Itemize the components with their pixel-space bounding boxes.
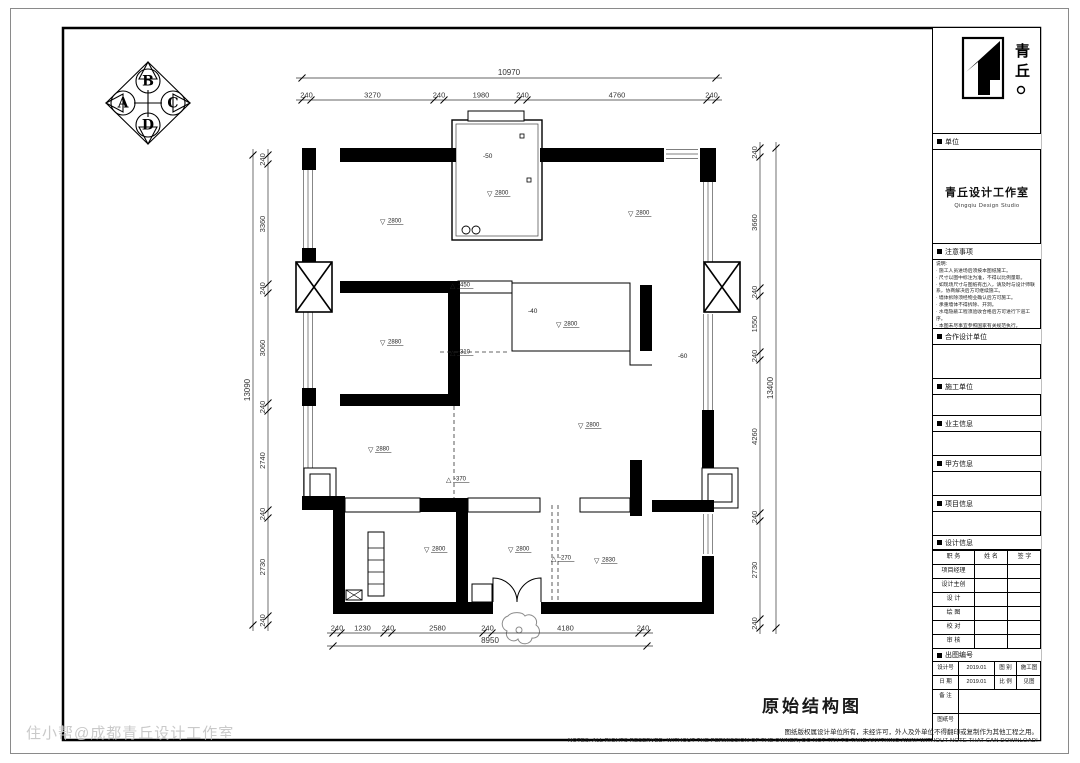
- compass-letter: D: [142, 118, 154, 134]
- dim-label: 1230: [354, 624, 371, 633]
- owner-label: 业主信息: [945, 419, 973, 429]
- level-mark-value: -450: [458, 283, 471, 289]
- dim-label: 240: [433, 91, 446, 100]
- drawing-sheet: 2403270240198024047602401097024012302402…: [0, 0, 1080, 763]
- level-mark-symbol: ▽: [628, 211, 634, 218]
- square-bullet-icon: [937, 249, 942, 254]
- date-label: 日 期: [933, 676, 959, 689]
- plant-graphic: [502, 613, 539, 644]
- dim-label: 240: [258, 282, 267, 295]
- level-mark-value: -370: [454, 477, 467, 483]
- svg-text:丘: 丘: [1015, 62, 1030, 80]
- sheetno-label: 出图编号: [945, 650, 973, 660]
- studio-name-en: Qingqiu Design Studio: [954, 203, 1019, 209]
- drawing-type-value: 施工图: [1017, 662, 1041, 675]
- dim-label: 3060: [258, 340, 267, 357]
- bay-window-room: [452, 111, 542, 240]
- dim-overall-label: 13400: [766, 376, 775, 399]
- design-col-name: 姓 名: [975, 551, 1008, 565]
- dim-label: 240: [382, 624, 395, 633]
- level-mark-value: 2800: [636, 211, 650, 217]
- drawing-title: 原始结构图: [762, 692, 862, 717]
- cabinet: [472, 584, 492, 602]
- dim-overall-label: 13090: [243, 378, 252, 401]
- level-mark-value: 2880: [388, 340, 402, 346]
- wardrobe: [368, 532, 384, 596]
- beam-offset-label: -50: [483, 153, 493, 160]
- section-header-design: 设计信息: [933, 535, 1041, 550]
- section-header-builder: 施工单位: [933, 378, 1041, 395]
- level-mark-symbol: △: [551, 556, 557, 563]
- table-row: 校 对: [933, 621, 975, 635]
- section-header-party: 甲方信息: [933, 455, 1041, 472]
- beam-offset-label: -60: [678, 353, 688, 360]
- copyright-cn: 图纸版权属设计单位所有，未经许可，外人及外单位不得翻印或复制作为其他工程之用。: [560, 729, 1038, 737]
- level-mark-symbol: ▽: [380, 340, 386, 347]
- square-bullet-icon: [937, 461, 942, 466]
- dim-label: 4760: [609, 91, 626, 100]
- level-mark-value: 2880: [376, 447, 390, 453]
- dim-label: 240: [481, 624, 494, 633]
- level-mark-symbol: △: [450, 283, 456, 290]
- dim-label: 2730: [258, 559, 267, 576]
- square-bullet-icon: [937, 540, 942, 545]
- dim-label: 240: [750, 617, 759, 630]
- level-mark-symbol: ▽: [556, 322, 562, 329]
- level-mark-value: 2800: [516, 547, 530, 553]
- dim-label: 240: [258, 614, 267, 627]
- design-label: 设计信息: [945, 538, 973, 548]
- dim-label: 240: [516, 91, 529, 100]
- level-mark-symbol: ▽: [368, 447, 374, 454]
- remark-label: 备 注: [933, 690, 959, 713]
- dim-label: 1980: [473, 91, 490, 100]
- dim-label: 3660: [750, 214, 759, 231]
- copyright-en: NOTES: ALL RIGHTS RESERVED. WITHOUT THE …: [560, 737, 1038, 745]
- level-mark-value: 2800: [432, 547, 446, 553]
- compass-letter: A: [117, 96, 130, 112]
- square-bullet-icon: [937, 501, 942, 506]
- info-row-2: 日 期 2019.01 比 例 见图: [933, 676, 1041, 690]
- level-mark-value: 2800: [495, 191, 509, 197]
- studio-name-cell: 青丘设计工作室 Qingqiu Design Studio: [933, 150, 1041, 243]
- compass-letter: C: [167, 96, 178, 112]
- square-bullet-icon: [937, 653, 942, 658]
- drawing-type-label: 图 别: [995, 662, 1017, 675]
- design-col-sign: 签 字: [1008, 551, 1041, 565]
- studio-logo: 青 丘: [933, 28, 1041, 133]
- level-mark-symbol: ▽: [487, 191, 493, 198]
- level-mark-symbol: △: [446, 477, 452, 484]
- table-row: 绘 图: [933, 607, 975, 621]
- level-mark-value: 2800: [564, 322, 578, 328]
- table-row: 设计主创: [933, 579, 975, 593]
- project-label: 项目信息: [945, 499, 973, 509]
- level-mark-symbol: ▽: [594, 558, 600, 565]
- watermark-text: 住小帮@成都青丘设计工作室: [26, 722, 234, 743]
- level-mark-value: 2830: [602, 558, 616, 564]
- level-mark-value: -310: [458, 350, 471, 356]
- beam-offset-label: -40: [528, 308, 538, 315]
- dim-overall-label: 10970: [498, 68, 521, 77]
- level-mark-symbol: ▽: [508, 547, 514, 554]
- logo-text: 青: [1015, 42, 1030, 60]
- compass-letter: B: [142, 74, 154, 90]
- square-bullet-icon: [937, 334, 942, 339]
- dim-label: 240: [331, 624, 344, 633]
- dim-label: 2730: [750, 562, 759, 579]
- design-table: 职 务 姓 名 签 字 项目经理 设计主创 设 计 绘 图 校 对 审 核: [933, 550, 1041, 648]
- dim-label: 240: [750, 286, 759, 299]
- floorplan-canvas: 2403270240198024047602401097024012302402…: [0, 0, 1080, 763]
- dim-overall-label: 8950: [481, 636, 499, 645]
- section-header-unit: 单位: [933, 133, 1041, 150]
- section-header-project: 项目信息: [933, 495, 1041, 512]
- copyright-footer: 图纸版权属设计单位所有，未经许可，外人及外单位不得翻印或复制作为其他工程之用。 …: [560, 729, 1038, 745]
- level-mark-value: -270: [559, 556, 572, 562]
- dim-label: 240: [705, 91, 718, 100]
- coop-label: 合作设计单位: [945, 332, 987, 342]
- dim-label: 240: [258, 153, 267, 166]
- level-mark-value: 2800: [586, 423, 600, 429]
- party-label: 甲方信息: [945, 459, 973, 469]
- dim-label: 240: [258, 508, 267, 521]
- level-mark-symbol: △: [450, 350, 456, 357]
- section-header-coop: 合作设计单位: [933, 328, 1041, 345]
- square-bullet-icon: [937, 421, 942, 426]
- section-header-owner: 业主信息: [933, 415, 1041, 432]
- remark-row: 备 注: [933, 690, 1041, 714]
- scale-value: 见图: [1017, 676, 1041, 689]
- builder-label: 施工单位: [945, 382, 973, 392]
- dim-label: 3270: [364, 91, 381, 100]
- design-no-value: 2019.01: [959, 662, 995, 675]
- dim-label: 2740: [258, 452, 267, 469]
- design-col-role: 职 务: [933, 551, 975, 565]
- table-row: 项目经理: [933, 565, 975, 579]
- thin-walls: [304, 281, 738, 602]
- notes-label: 注意事项: [945, 247, 973, 257]
- notes-text: 说明: · 施工人员进场后须按本图纸施工。 · 尺寸以图中标注为准，不得以比例量…: [933, 260, 1041, 328]
- design-no-label: 设计号: [933, 662, 959, 675]
- dim-label: 2580: [429, 624, 446, 633]
- dim-label: 4260: [750, 428, 759, 445]
- dim-label: 4180: [557, 624, 574, 633]
- logo-graphic: 青 丘: [933, 28, 1041, 133]
- kitchen-room: [512, 283, 630, 351]
- dim-label: 240: [750, 146, 759, 159]
- dim-label: 240: [750, 511, 759, 524]
- date-value: 2019.01: [959, 676, 995, 689]
- dim-label: 240: [750, 350, 759, 363]
- dim-label: 240: [300, 91, 313, 100]
- scale-label: 比 例: [995, 676, 1017, 689]
- dim-label: 3360: [258, 216, 267, 233]
- title-block: 青 丘 单位 青丘设计工作室 Qingqiu Design Studio 注意事…: [932, 28, 1040, 740]
- table-row: 设 计: [933, 593, 975, 607]
- section-header-sheetno: 出图编号: [933, 648, 1041, 662]
- level-mark-symbol: ▽: [578, 423, 584, 430]
- entry-door: [493, 578, 541, 602]
- section-header-notes: 注意事项: [933, 243, 1041, 260]
- dim-label: 1550: [750, 316, 759, 333]
- level-mark-symbol: ▽: [380, 219, 386, 226]
- square-bullet-icon: [937, 384, 942, 389]
- unit-label: 单位: [945, 137, 959, 147]
- studio-name-cn: 青丘设计工作室: [945, 184, 1029, 200]
- table-row: 审 核: [933, 635, 975, 649]
- info-row-1: 设计号 2019.01 图 别 施工图: [933, 662, 1041, 676]
- square-bullet-icon: [937, 139, 942, 144]
- dim-label: 240: [258, 401, 267, 414]
- dim-label: 240: [637, 624, 650, 633]
- level-mark-symbol: ▽: [424, 547, 430, 554]
- level-mark-value: 2800: [388, 219, 402, 225]
